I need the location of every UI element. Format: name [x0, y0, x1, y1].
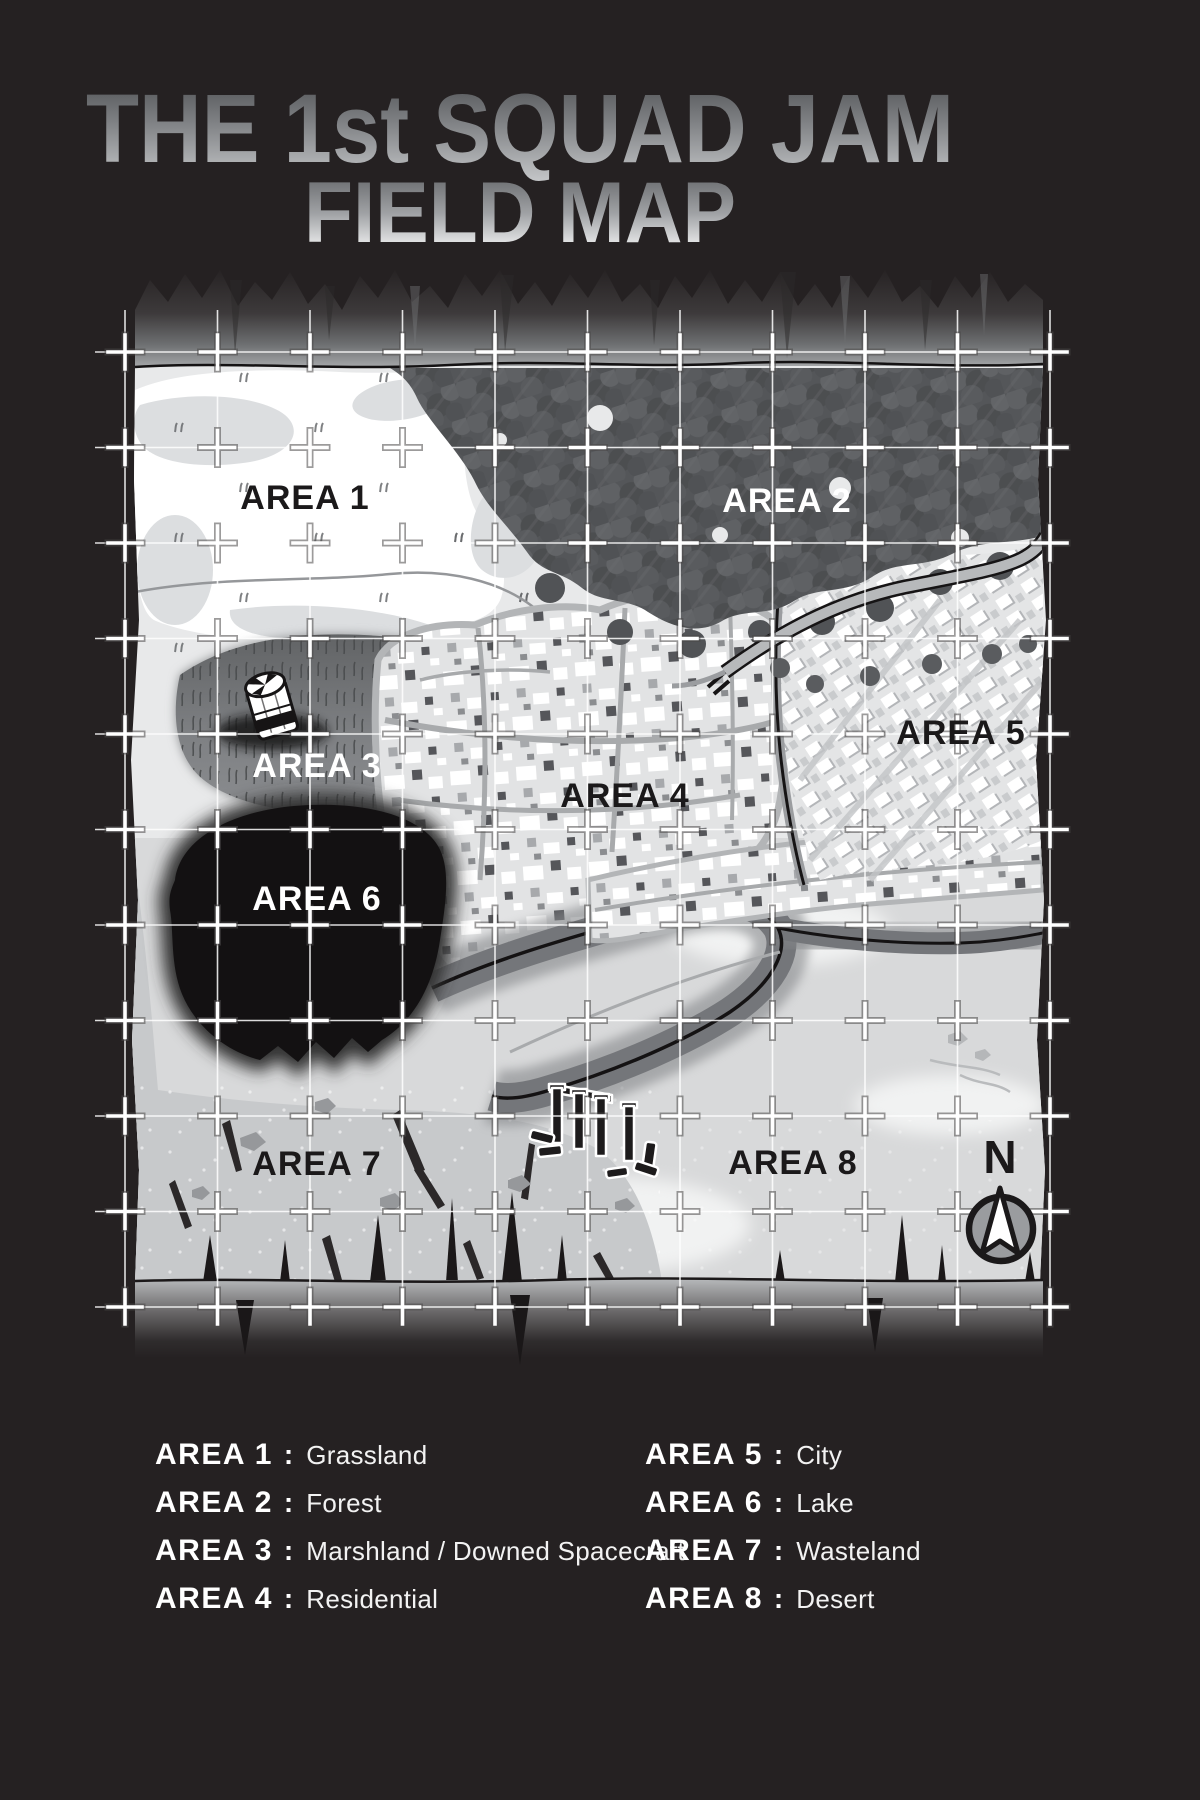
compass-north-label: N	[983, 1131, 1016, 1183]
legend-item: AREA 6 : Lake	[645, 1486, 921, 1516]
legend-area-name: AREA 7	[645, 1534, 763, 1568]
area-label-5: AREA 5	[896, 714, 1025, 752]
legend-terrain: City	[796, 1440, 842, 1471]
area-label-3: AREA 3	[252, 747, 381, 785]
legend-area-name: AREA 4	[155, 1582, 273, 1616]
legend-area-name: AREA 6	[645, 1486, 763, 1520]
legend-item: AREA 3 : Marshland / Downed Spacecraft	[155, 1534, 685, 1564]
legend-terrain: Marshland / Downed Spacecraft	[306, 1536, 685, 1567]
legend-item: AREA 5 : City	[645, 1438, 921, 1468]
area-label-7: AREA 7	[252, 1145, 381, 1183]
legend-separator: :	[774, 1535, 783, 1567]
legend-separator: :	[284, 1487, 293, 1519]
legend-separator: :	[774, 1583, 783, 1615]
legend-terrain: Desert	[796, 1584, 874, 1615]
legend-terrain: Wasteland	[796, 1536, 921, 1567]
legend-item: AREA 2 : Forest	[155, 1486, 685, 1516]
area-label-8: AREA 8	[728, 1144, 857, 1182]
legend-area-name: AREA 3	[155, 1534, 273, 1568]
legend-separator: :	[284, 1583, 293, 1615]
legend-terrain: Residential	[306, 1584, 438, 1615]
legend-separator: :	[774, 1439, 783, 1471]
title-line-2: FIELD MAP	[304, 165, 736, 250]
legend-separator: :	[284, 1535, 293, 1567]
legend-item: AREA 1 : Grassland	[155, 1438, 685, 1468]
legend-area-name: AREA 8	[645, 1582, 763, 1616]
legend-area-name: AREA 2	[155, 1486, 273, 1520]
area-label-2: AREA 2	[722, 482, 851, 520]
area-label-1: AREA 1	[240, 479, 369, 517]
legend-item: AREA 8 : Desert	[645, 1582, 921, 1612]
legend-terrain: Lake	[796, 1488, 854, 1519]
legend-item: AREA 4 : Residential	[155, 1582, 685, 1612]
legend-item: AREA 7 : Wasteland	[645, 1534, 921, 1564]
legend-separator: :	[284, 1439, 293, 1471]
legend-area-name: AREA 1	[155, 1438, 273, 1472]
legend-terrain: Grassland	[306, 1440, 427, 1471]
field-map: AREA 1 AREA 2 AREA 3 AREA 4 AREA 5 AREA …	[80, 240, 1160, 1390]
title-block: THE 1st SQUAD JAM FIELD MAP	[0, 70, 1040, 250]
area-label-6: AREA 6	[252, 880, 381, 918]
legend-separator: :	[774, 1487, 783, 1519]
legend-terrain: Forest	[306, 1488, 381, 1519]
legend-area-name: AREA 5	[645, 1438, 763, 1472]
legend-column-right: AREA 5 : City AREA 6 : Lake AREA 7 : Was…	[645, 1438, 921, 1630]
poster-root: THE 1st SQUAD JAM FIELD MAP	[0, 0, 1200, 1800]
legend-column-left: AREA 1 : Grassland AREA 2 : Forest AREA …	[155, 1438, 685, 1630]
area-label-4: AREA 4	[560, 777, 689, 815]
